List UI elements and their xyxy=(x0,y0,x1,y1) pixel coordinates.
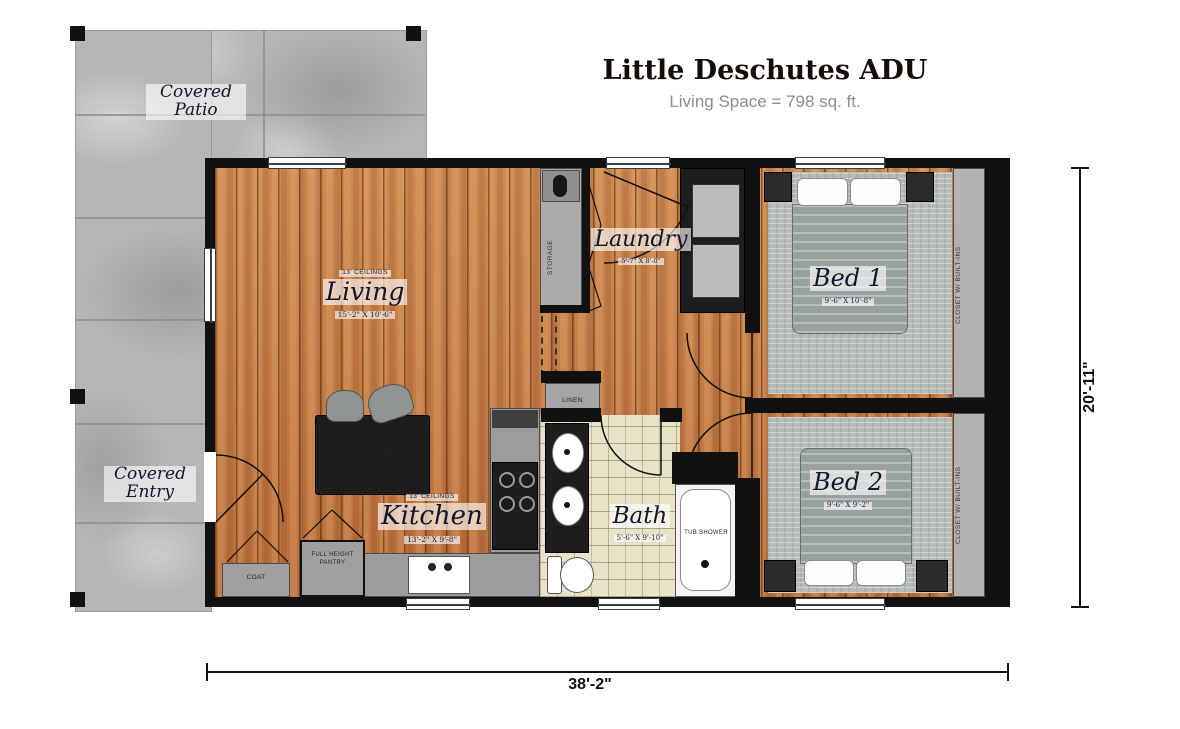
height-dim-label: 20'-11" xyxy=(1081,347,1099,427)
entry-joint xyxy=(75,522,210,524)
plan-title: Little Deschutes ADU xyxy=(565,55,965,86)
bed1-label: Bed 1 9'-6" X 10'-8" xyxy=(793,266,903,308)
faucet xyxy=(428,563,436,571)
utility-sink-basin xyxy=(553,175,567,197)
plan-subtitle: Living Space = 798 sq. ft. xyxy=(565,92,965,112)
patio-post xyxy=(70,26,85,41)
laundry-window-top xyxy=(606,157,670,169)
bed2-dims: 9'-6" X 9'-2" xyxy=(824,502,872,509)
covered-patio-label: Covered Patio xyxy=(146,84,246,120)
entry-joint xyxy=(75,319,210,321)
bed2-closet-label: CLOSET W/ BUILT-INS xyxy=(955,425,983,585)
entry-joint xyxy=(75,423,210,425)
sink-drain xyxy=(564,502,570,508)
kitchen-ceiling-note: 13' CEILINGS xyxy=(406,494,457,501)
living-window-left xyxy=(204,248,216,322)
linen-label: LINEN xyxy=(545,397,600,405)
patio-post xyxy=(70,389,85,404)
patio-joint xyxy=(75,114,425,116)
sink-drain xyxy=(564,449,570,455)
tub-drain xyxy=(701,560,709,568)
covered-entry-label: Covered Entry xyxy=(104,466,196,502)
patio-post xyxy=(406,26,421,41)
height-dim-tick xyxy=(1071,167,1089,169)
width-dim-tick xyxy=(206,663,208,681)
bed1-name: Bed 1 xyxy=(810,266,886,291)
patio-post xyxy=(70,592,85,607)
bath-dims: 5'-6" X 9'-10" xyxy=(614,535,667,542)
floor-plan-canvas: CLOSET W/ BUILT-INS CLOSET W/ BUILT-INS … xyxy=(0,0,1180,729)
patio-joint xyxy=(263,30,265,162)
burner xyxy=(519,496,535,512)
bed2-label: Bed 2 9'-6" X 9'-2" xyxy=(793,470,903,512)
storage-label: STORAGE xyxy=(547,210,575,305)
living-name: Living xyxy=(323,279,408,305)
width-dim-line xyxy=(207,671,1008,673)
living-ceiling-note: 13' CEILINGS xyxy=(339,270,390,277)
bed2-name: Bed 2 xyxy=(810,470,886,495)
bath-window-bottom xyxy=(598,598,660,610)
pantry-label: FULL HEIGHT PANTRY xyxy=(302,552,363,567)
bed1-dims: 9'-6" X 10'-8" xyxy=(822,298,875,305)
width-dim-tick xyxy=(1007,663,1009,681)
width-dim-label: 38'-2" xyxy=(520,676,660,694)
laundry-name: Laundry xyxy=(591,228,690,251)
living-window-top xyxy=(268,157,346,169)
kitchen-window-bottom xyxy=(406,598,470,610)
island-label: 30" ISLAND xyxy=(333,448,413,456)
bed2-window-bottom xyxy=(795,598,885,610)
bed1-closet-label: CLOSET W/ BUILT-INS xyxy=(955,200,983,370)
covered-patio-name: Covered Patio xyxy=(146,84,246,120)
bath-name: Bath xyxy=(610,504,671,528)
entry-joint xyxy=(75,217,210,219)
tub-shower-label: TUB SHOWER xyxy=(680,530,732,538)
faucet xyxy=(444,563,452,571)
bed1-window-top xyxy=(795,157,885,169)
kitchen-label: 13' CEILINGS Kitchen 13'-2" X 9'-8" xyxy=(362,486,502,547)
coat-label: COAT xyxy=(222,574,290,582)
laundry-label: Laundry 5'-7" X 8'-0" xyxy=(586,228,696,268)
burner xyxy=(519,472,535,488)
living-label: 13' CEILINGS Living 15'-2" X 10'-6" xyxy=(300,262,430,322)
kitchen-dims: 13'-2" X 9'-8" xyxy=(404,536,460,544)
kitchen-name: Kitchen xyxy=(378,503,486,530)
living-dims: 15'-2" X 10'-6" xyxy=(335,311,396,319)
entry-door-opening xyxy=(204,452,216,522)
bath-label: Bath 5'-6" X 9'-10" xyxy=(594,504,686,545)
laundry-dims: 5'-7" X 8'-0" xyxy=(618,258,663,265)
height-dim-tick xyxy=(1071,606,1089,608)
covered-entry-name: Covered Entry xyxy=(104,466,196,502)
